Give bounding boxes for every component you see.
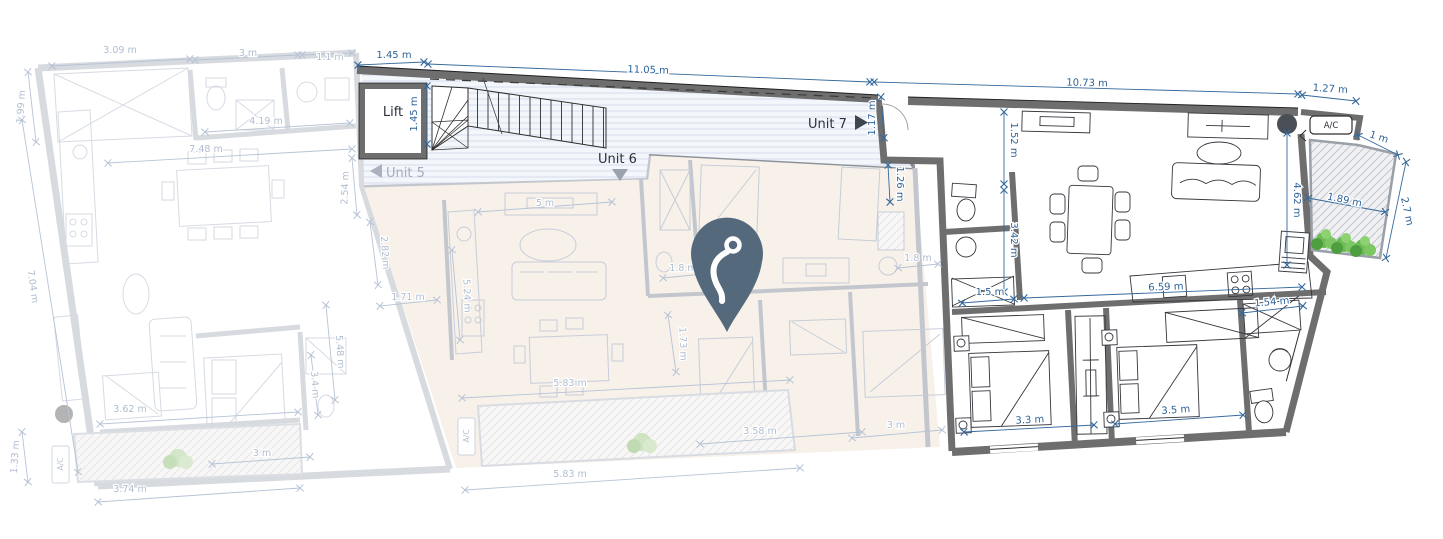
dim-u6-balcony-width: 5.83 m (465, 468, 800, 490)
svg-text:7.48 m: 7.48 m (189, 144, 222, 155)
unit5-terrace (54, 68, 192, 142)
svg-text:1 m: 1 m (1368, 129, 1390, 145)
svg-text:3.5 m: 3.5 m (1161, 404, 1191, 417)
svg-text:3.42 m: 3.42 m (1008, 222, 1019, 257)
svg-text:3.74 m: 3.74 m (113, 484, 146, 495)
svg-text:1.1 m: 1.1 m (316, 52, 343, 63)
svg-text:10.73 m: 10.73 m (1066, 77, 1108, 89)
svg-text:1.5 m: 1.5 m (976, 287, 1005, 298)
svg-text:1.45 m: 1.45 m (409, 96, 420, 131)
unit7-label[interactable]: Unit 7 (808, 117, 847, 132)
svg-text:1.73 m: 1.73 m (676, 327, 688, 361)
svg-text:3 m: 3 m (239, 48, 257, 59)
floor-plan-canvas: A/C (0, 0, 1443, 539)
dim-unit7-top: 10.73 m (874, 77, 1298, 94)
unit5-dining (162, 149, 284, 240)
svg-text:2.82 m: 2.82 m (378, 236, 391, 270)
dim-u5-left-top: 1.99 m (15, 72, 36, 142)
dim-u5-balcony-depth: 1.33 m (9, 432, 28, 482)
unit5-column (55, 405, 73, 423)
svg-text:4.19 m: 4.19 m (249, 116, 282, 127)
dim-terrace-top: 1.27 m (1302, 83, 1356, 101)
svg-text:3.4 m: 3.4 m (308, 371, 321, 399)
unit7-ac-label: A/C (1324, 121, 1339, 131)
svg-text:1.26 m: 1.26 m (894, 166, 905, 201)
svg-text:1.99 m: 1.99 m (15, 90, 28, 124)
svg-text:2.7 m: 2.7 m (1398, 196, 1415, 226)
svg-text:3 m: 3 m (887, 420, 905, 431)
svg-text:1.17 m: 1.17 m (867, 100, 878, 135)
svg-text:1.27 m: 1.27 m (1312, 83, 1348, 96)
svg-text:1.45 m: 1.45 m (376, 50, 411, 61)
unit6-ac-label: A/C (462, 430, 471, 443)
svg-text:3.09 m: 3.09 m (103, 45, 136, 56)
dim-lift-top: 1.45 m (358, 50, 424, 65)
svg-text:2.54 m: 2.54 m (339, 171, 351, 205)
svg-text:11.05 m: 11.05 m (627, 64, 669, 76)
dim-u5-right-top: 2.54 m (339, 158, 357, 215)
svg-text:5.24 m: 5.24 m (460, 279, 472, 313)
svg-text:1.8 m: 1.8 m (904, 253, 931, 264)
dim-u5-living-top: 7.48 m (108, 144, 352, 163)
unit5-ac-label: A/C (56, 458, 65, 471)
unit6-label[interactable]: Unit 6 (598, 152, 637, 167)
svg-text:6.59 m: 6.59 m (1148, 281, 1184, 293)
svg-text:1.33 m: 1.33 m (9, 440, 22, 474)
svg-text:1.52 m: 1.52 m (1008, 122, 1019, 157)
svg-text:5.48 m: 5.48 m (333, 335, 346, 369)
svg-text:3.62 m: 3.62 m (113, 404, 146, 415)
svg-text:4.62 m: 4.62 m (1291, 182, 1302, 217)
svg-text:5.83 m: 5.83 m (553, 469, 586, 480)
svg-text:3 m: 3 m (253, 448, 271, 459)
unit5-label[interactable]: Unit 5 (386, 166, 425, 181)
unit7-column (1277, 114, 1297, 134)
unit7-ac-unit: A/C (1300, 112, 1360, 141)
svg-text:7.04 m: 7.04 m (25, 269, 41, 304)
lift-label: Lift (383, 105, 403, 120)
svg-text:3.58 m: 3.58 m (743, 426, 776, 437)
svg-text:5 m: 5 m (536, 198, 554, 209)
svg-text:5.83 m: 5.83 m (553, 378, 586, 389)
dim-u5-mid-d: 3.4 m (308, 355, 321, 415)
unit5-ac-unit: A/C (52, 446, 69, 483)
dim-u5-mid-c: 5.48 m (326, 305, 346, 400)
unit6-plan: A/C (364, 150, 945, 468)
svg-text:3.3 m: 3.3 m (1015, 414, 1044, 426)
floor-plan-svg: A/C (0, 0, 1443, 539)
dim-u5-balcony-width: 3.74 m (98, 484, 300, 502)
unit6-ac-unit: A/C (458, 418, 475, 455)
svg-text:1.71 m: 1.71 m (391, 292, 424, 303)
unit7-plan: A/C (879, 97, 1396, 453)
